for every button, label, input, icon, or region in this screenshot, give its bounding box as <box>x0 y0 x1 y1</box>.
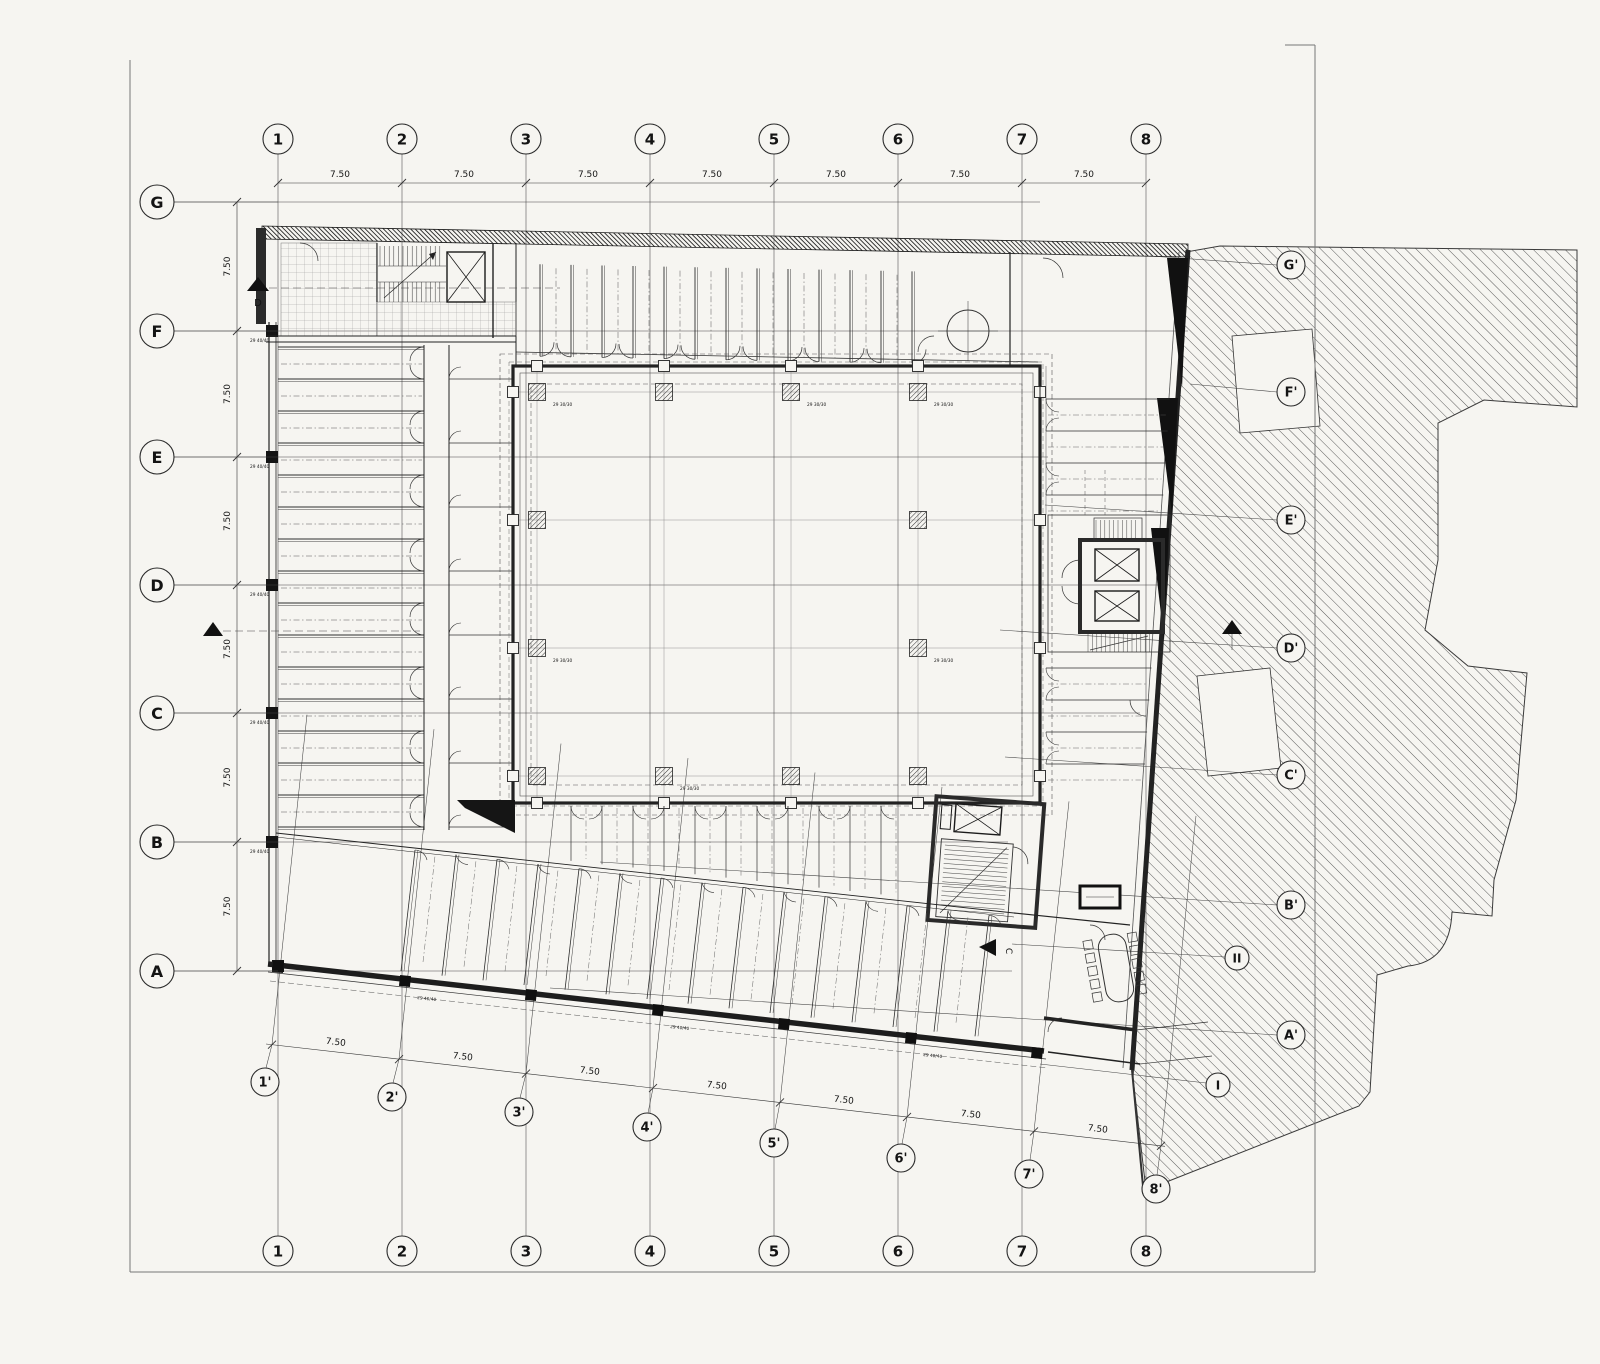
dim-label-top: 7.50 <box>454 170 474 180</box>
dim-label-left: 7.50 <box>223 256 233 276</box>
atrium-column <box>783 384 800 401</box>
atrium-column <box>656 384 673 401</box>
grid-bubble-left-label: C <box>151 704 163 723</box>
beam-joint <box>508 515 519 526</box>
beam-joint <box>1035 515 1046 526</box>
beam-joint <box>659 361 670 372</box>
grid-bubble-top-3-label: 3 <box>521 130 531 148</box>
grid-bubble-right-label: D' <box>1284 642 1299 657</box>
grid-bubble-top-8-label: 8 <box>1141 130 1151 148</box>
grid-bubble-left-label: E <box>152 448 163 467</box>
grid-bubble-bottom-primed-label: 2' <box>385 1091 398 1106</box>
architectural-floor-plan-sheet: 7.507.507.507.507.507.507.507.507.507.50… <box>0 0 1600 1364</box>
column-code-label: 29 40/40 <box>250 338 269 344</box>
grid-bubble-top-7-label: 7 <box>1017 130 1027 148</box>
column <box>652 1004 664 1016</box>
grid-bubble-bottom-5-label: 5 <box>769 1242 779 1260</box>
atrium-column <box>910 768 927 785</box>
column-code-label: 29 30/30 <box>553 402 572 408</box>
atrium-column <box>783 768 800 785</box>
atrium-column <box>910 384 927 401</box>
grid-bubble-left-label: D <box>150 576 163 595</box>
grid-bubble-right-label: A' <box>1284 1029 1298 1044</box>
grid-bubble-bottom-8-label: 8 <box>1141 1242 1151 1260</box>
entrance-tiled-floor <box>281 243 377 336</box>
column-code-label: 29 30/30 <box>934 402 953 408</box>
dim-label-top: 7.50 <box>826 170 846 180</box>
grid-bubble-left-label: F <box>152 322 163 341</box>
beam-joint <box>1035 643 1046 654</box>
grid-bubble-right-label: C' <box>1284 769 1298 784</box>
beam-joint <box>1035 771 1046 782</box>
column-code-label: 29 40/40 <box>250 464 269 470</box>
hatch-cutout-upper <box>1232 329 1320 433</box>
dim-label-left: 7.50 <box>223 767 233 787</box>
grid-bubble-site-I-label: I <box>1216 1078 1220 1092</box>
column-code-label: 29 30/30 <box>680 786 699 792</box>
dim-label-top: 7.50 <box>330 170 350 180</box>
grid-bubble-bottom-primed-label: 5' <box>767 1137 780 1152</box>
grid-bubble-bottom-primed-label: 7' <box>1022 1168 1035 1183</box>
atrium-column <box>656 768 673 785</box>
column-code-label: 29 30/30 <box>934 658 953 664</box>
grid-bubble-bottom-primed-label: 3' <box>512 1106 525 1121</box>
grid-bubble-bottom-2-label: 2 <box>397 1242 407 1260</box>
floor-plan-drawing: 7.507.507.507.507.507.507.507.507.507.50… <box>0 0 1600 1364</box>
entrance-tiled-floor <box>377 302 516 336</box>
grid-bubble-bottom-primed-label: 6' <box>894 1152 907 1167</box>
grid-bubble-top-6-label: 6 <box>893 130 903 148</box>
dim-label-left: 7.50 <box>223 384 233 404</box>
dim-label-left: 7.50 <box>223 896 233 916</box>
column <box>399 975 411 987</box>
beam-joint <box>532 798 543 809</box>
beam-joint <box>786 361 797 372</box>
column-code-label: 29 30/30 <box>807 402 826 408</box>
column <box>778 1018 790 1030</box>
grid-bubble-right-label: F' <box>1285 386 1298 401</box>
grid-bubble-right-label: G' <box>1284 259 1299 274</box>
beam-joint <box>508 771 519 782</box>
atrium-column <box>529 640 546 657</box>
hatch-cutout-lower <box>1197 668 1281 776</box>
grid-bubble-right-label: B' <box>1284 899 1298 914</box>
column-code-label: 29 30/30 <box>553 658 572 664</box>
column-code-label: 29 40/40 <box>250 592 269 598</box>
grid-bubble-bottom-4-label: 4 <box>645 1242 655 1260</box>
dim-label-left: 7.50 <box>223 639 233 659</box>
column <box>525 989 537 1001</box>
column <box>1031 1047 1043 1059</box>
dim-label-left: 7.50 <box>223 511 233 531</box>
atrium-column <box>910 640 927 657</box>
grid-bubble-top-2-label: 2 <box>397 130 407 148</box>
dim-label-top: 7.50 <box>702 170 722 180</box>
grid-bubble-left-label: G <box>150 193 163 212</box>
column-code-label: 29 40/40 <box>250 720 269 726</box>
section-marker-label: D <box>254 298 262 309</box>
grid-bubble-bottom-primed-label: 8' <box>1149 1183 1162 1198</box>
grid-bubble-left-label: A <box>151 962 164 981</box>
beam-joint <box>532 361 543 372</box>
beam-joint <box>508 643 519 654</box>
beam-joint <box>508 387 519 398</box>
west-wall-stub <box>256 228 266 324</box>
grid-bubble-bottom-1-label: 1 <box>273 1242 283 1260</box>
beam-joint <box>786 798 797 809</box>
grid-bubble-bottom-3-label: 3 <box>521 1242 531 1260</box>
dim-label-top: 7.50 <box>950 170 970 180</box>
grid-bubble-top-5-label: 5 <box>769 130 779 148</box>
section-marker-label: C <box>1003 948 1013 954</box>
grid-bubble-left-label: B <box>151 833 163 852</box>
grid-bubble-right-label: E' <box>1285 514 1298 529</box>
column-code-label: 29 40/40 <box>250 849 269 855</box>
grid-bubble-bottom-primed-label: 4' <box>640 1121 653 1136</box>
grid-bubble-bottom-7-label: 7 <box>1017 1242 1027 1260</box>
grid-bubble-top-1-label: 1 <box>273 130 283 148</box>
column <box>905 1032 917 1044</box>
grid-bubble-bottom-6-label: 6 <box>893 1242 903 1260</box>
atrium-column <box>529 512 546 529</box>
grid-bubble-site-II-label: II <box>1233 951 1242 965</box>
dim-label-top: 7.50 <box>578 170 598 180</box>
dim-label-top: 7.50 <box>1074 170 1094 180</box>
grid-bubble-top-4-label: 4 <box>645 130 655 148</box>
beam-joint <box>913 361 924 372</box>
atrium-column <box>529 384 546 401</box>
grid-bubble-bottom-primed-label: 1' <box>258 1076 271 1091</box>
atrium-column <box>910 512 927 529</box>
beam-joint <box>913 798 924 809</box>
atrium-column <box>529 768 546 785</box>
